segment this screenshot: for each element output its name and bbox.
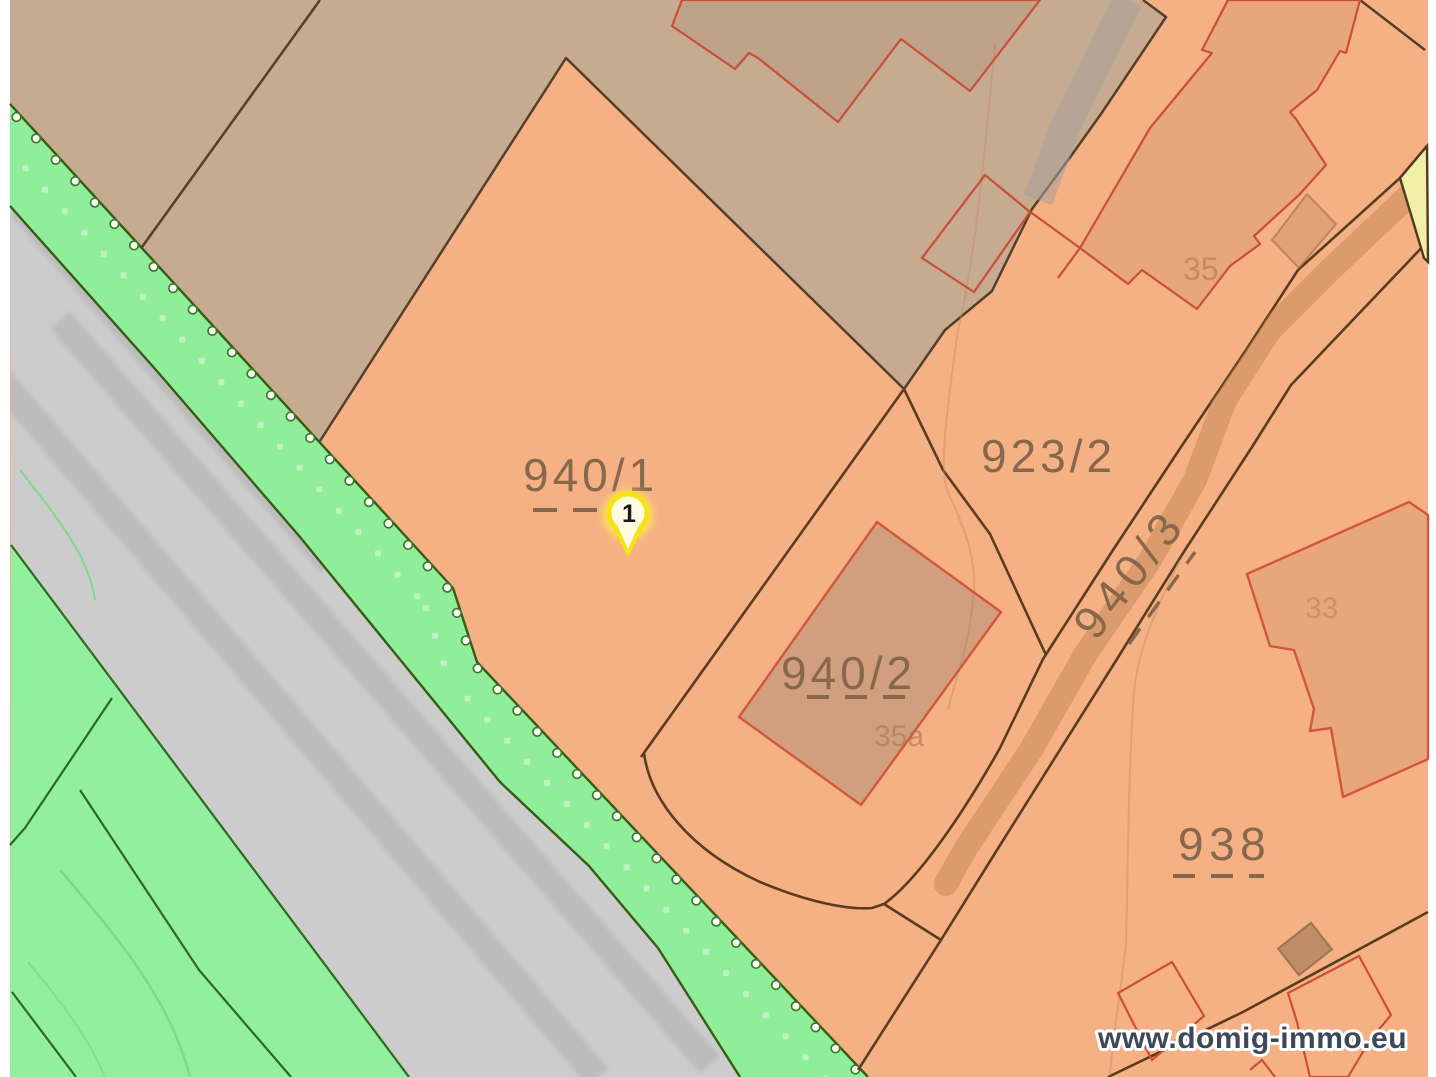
- svg-text:33: 33: [1305, 592, 1338, 625]
- svg-text:923/2: 923/2: [981, 430, 1116, 482]
- svg-text:www.domig-immo.eu: www.domig-immo.eu: [1097, 1022, 1407, 1055]
- svg-text:35a: 35a: [874, 720, 924, 753]
- svg-text:35: 35: [1183, 251, 1219, 287]
- svg-text:938: 938: [1178, 818, 1271, 870]
- svg-text:1: 1: [622, 500, 636, 528]
- svg-text:940/2: 940/2: [781, 647, 916, 699]
